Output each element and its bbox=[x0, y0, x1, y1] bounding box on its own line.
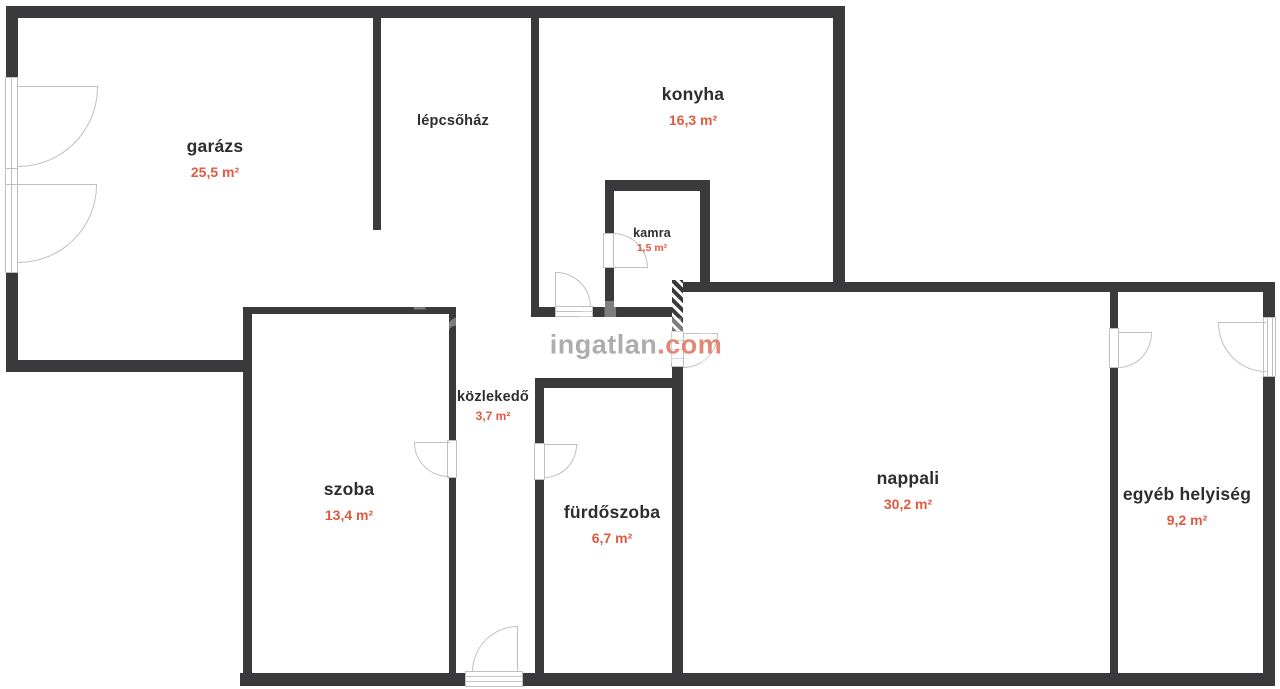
wall bbox=[373, 18, 381, 230]
watermark-tld: .com bbox=[714, 287, 902, 381]
wall bbox=[605, 180, 614, 233]
wall bbox=[449, 478, 456, 673]
wall bbox=[243, 307, 252, 686]
wall bbox=[6, 6, 18, 77]
room-area: 13,4 m² bbox=[324, 507, 375, 523]
room-area: 30,2 m² bbox=[877, 496, 940, 512]
door-swing-arc bbox=[544, 445, 577, 478]
room-label-szoba: szoba 13,4 m² bbox=[324, 479, 375, 523]
watermark-logo: ingatlan.com bbox=[550, 330, 723, 361]
room-label-kozlekedo: közlekedő 3,7 m² bbox=[457, 389, 529, 423]
wall bbox=[6, 273, 18, 372]
floor-plan: garázs 25,5 m² lépcsőház konyha 16,3 m² … bbox=[0, 0, 1280, 689]
room-area: 1,5 m² bbox=[633, 242, 671, 254]
wall bbox=[700, 180, 710, 292]
room-label-egyeb-helyiseg: egyéb helyiség 9,2 m² bbox=[1123, 484, 1251, 528]
wall bbox=[1110, 292, 1118, 328]
garage-door-frame-divider bbox=[5, 184, 18, 185]
room-name: fürdőszoba bbox=[564, 502, 660, 523]
room-name: nappali bbox=[877, 468, 940, 489]
wall bbox=[833, 18, 845, 292]
room-area: 9,2 m² bbox=[1123, 512, 1251, 528]
door-swing-arc bbox=[1218, 323, 1266, 372]
garage-door-frame-divider bbox=[5, 168, 18, 169]
room-area: 25,5 m² bbox=[187, 164, 244, 180]
room-name: konyha bbox=[662, 84, 724, 105]
room-label-konyha: konyha 16,3 m² bbox=[662, 84, 724, 128]
watermark-tld: .com bbox=[657, 330, 722, 360]
room-name: szoba bbox=[324, 479, 375, 500]
wall bbox=[531, 18, 539, 317]
room-name: közlekedő bbox=[457, 389, 529, 405]
door-swing-arc bbox=[1118, 333, 1152, 368]
wall bbox=[535, 480, 544, 673]
room-name: egyéb helyiség bbox=[1123, 484, 1251, 505]
room-name: garázs bbox=[187, 136, 244, 157]
room-name: lépcsőház bbox=[417, 113, 489, 129]
wall bbox=[1263, 377, 1275, 686]
room-label-kamra: kamra 1,5 m² bbox=[633, 226, 671, 254]
wall bbox=[1110, 368, 1118, 673]
wall bbox=[672, 366, 683, 673]
room-area: 3,7 m² bbox=[457, 409, 529, 423]
room-name: kamra bbox=[633, 226, 671, 240]
watermark-brand: ingatlan bbox=[550, 330, 658, 360]
door-swing-arc bbox=[414, 443, 449, 477]
room-label-lepcsohaz: lépcsőház bbox=[417, 113, 489, 129]
room-label-furdoszoba: fürdőszoba 6,7 m² bbox=[564, 502, 660, 546]
room-label-garazs: garázs 25,5 m² bbox=[187, 136, 244, 180]
door-swing-arc bbox=[472, 626, 518, 672]
wall bbox=[8, 6, 845, 18]
entrance-door-frame bbox=[465, 671, 523, 687]
room-area: 6,7 m² bbox=[564, 530, 660, 546]
room-label-nappali: nappali 30,2 m² bbox=[877, 468, 940, 512]
wall bbox=[6, 360, 250, 372]
wall bbox=[523, 673, 1275, 686]
wall bbox=[605, 180, 710, 191]
door-swing-arc bbox=[18, 87, 98, 167]
wall bbox=[240, 673, 465, 686]
door-swing-arc bbox=[18, 185, 97, 263]
room-area: 16,3 m² bbox=[662, 112, 724, 128]
garage-door-frame bbox=[5, 77, 18, 273]
